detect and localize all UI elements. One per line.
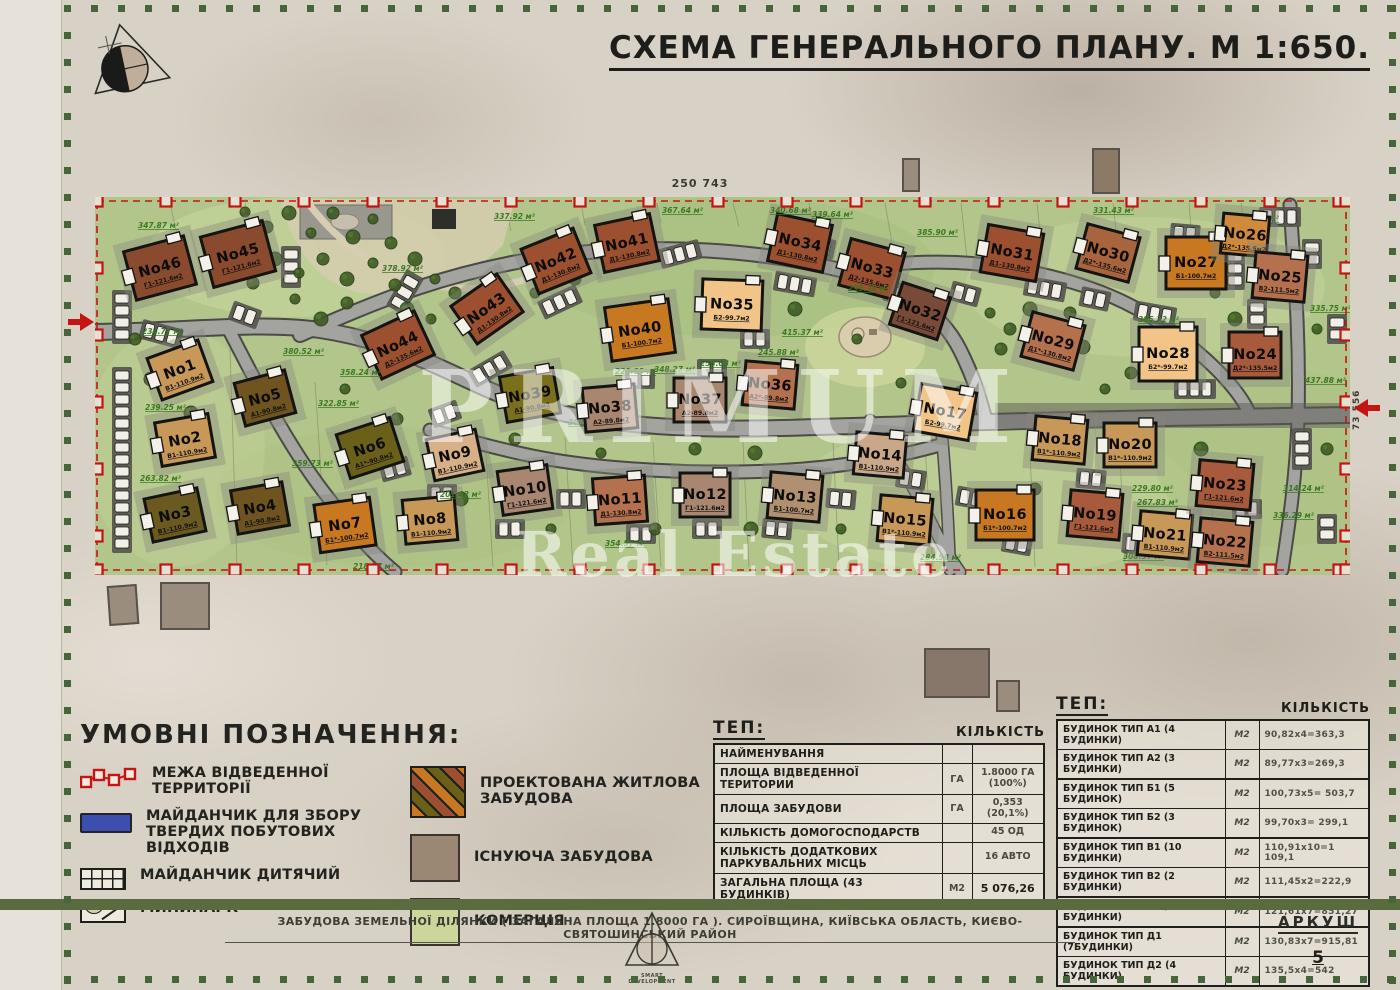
boundary-marker <box>1341 263 1351 274</box>
tep-types-row: БУДИНОК ТИП В1 (10 БУДИНКИ)М2110,91х10=1… <box>1057 838 1369 868</box>
plot-number: No16 <box>983 507 1027 523</box>
plot-No31: No31Д1-130.8м2 <box>970 214 1054 292</box>
plot-No40: No40Б1-100.7м2 <box>594 289 685 372</box>
existing-building <box>107 584 140 626</box>
tep-types-c-unit: М2 <box>1225 720 1259 750</box>
tep-main-c-name: КІЛЬКІСТЬ ДОМОГОСПОДАРСТВ <box>714 823 942 842</box>
arrow-head <box>80 313 94 331</box>
waste-area-icon <box>80 813 132 833</box>
tep-types-c-name: БУДИНОК ТИП Б1 (5 БУДИНОК) <box>1057 779 1225 809</box>
existing-housing-icon <box>410 834 460 882</box>
boundary-marker <box>644 197 655 207</box>
tep-types-c-name: БУДИНОК ТИП В2 (2 БУДИНКИ) <box>1057 868 1225 898</box>
boundary-marker <box>368 565 379 576</box>
parking-lot <box>112 367 132 553</box>
tep-types-title: ТЕП: <box>1056 694 1108 716</box>
tep-types-c-name: БУДИНОК ТИП Д1 (7БУДИНКИ) <box>1057 927 1225 957</box>
boundary-marker <box>230 197 241 207</box>
parking-lot <box>1292 428 1312 470</box>
tep-types-row: БУДИНОК ТИП Б2 (3 БУДИНОК)М299,70х3= 299… <box>1057 809 1369 839</box>
boundary-marker <box>1127 565 1138 576</box>
arrow-tail <box>1368 405 1380 411</box>
boundary-marker <box>1341 397 1351 408</box>
plot-type-label: Б1*-100.7м2 <box>983 525 1027 532</box>
legend-label: МАЙДАНЧИК ДЛЯ ЗБОРУ ТВЕРДИХ ПОБУТОВИХ ВІ… <box>146 809 372 857</box>
plot-area-label: 378.92 м² <box>382 264 424 273</box>
plot-type-label: Б2-99.7м2 <box>713 314 749 322</box>
plot-No12: No12Г1-121.6м2 <box>671 464 739 526</box>
plot-number: No20 <box>1108 437 1152 453</box>
boundary-marker <box>1265 197 1276 207</box>
tep-types-c-qty: 110,91х10=1 109,1 <box>1259 838 1369 868</box>
projected-housing-icon <box>410 766 466 818</box>
legend-item-boundary: МЕЖА ВІДВЕДЕННОЇ ТЕРРИТОРІЇ <box>80 766 372 798</box>
legend-heading: УМОВНІ ПОЗНАЧЕННЯ: <box>80 720 700 750</box>
developer-logo: SMART DEVELOPMENT <box>620 911 684 985</box>
tep-main-qty-header: КІЛЬКІСТЬ <box>956 725 1045 740</box>
plot-No25: No25В2-111.5м2 <box>1242 242 1317 312</box>
plot-type-label: Д2*-135.5м2 <box>1233 365 1278 372</box>
plot-number: No37 <box>678 392 722 408</box>
plot-number: No12 <box>683 487 727 503</box>
boundary-marker <box>161 197 172 207</box>
plot-area-label: 354.57 м² <box>605 539 647 548</box>
boundary-marker <box>95 464 103 475</box>
sheet-number: 5 <box>1268 948 1368 968</box>
boundary-marker <box>95 330 103 341</box>
plot-No20: No20В1*-110.9м2 <box>1095 414 1165 476</box>
plot-type-label: В1*-110.9м2 <box>1108 455 1152 462</box>
tep-main-table: ТЕП: КІЛЬКІСТЬ НАЙМЕНУВАННЯПЛОЩА ВІДВЕДЕ… <box>713 718 1045 906</box>
plot-area-label: 339.64 м² <box>812 210 854 219</box>
tep-main-row: ПЛОЩА ЗАБУДОВИГА0,353 (20,1%) <box>714 795 1044 824</box>
plot-No16: No16Б1*-100.7м2 <box>967 481 1043 549</box>
plot-No39: No39А1-90.8м2 <box>489 357 571 433</box>
tep-main-c-qty: 0,353 (20,1%) <box>972 795 1044 824</box>
boundary-marker <box>299 197 310 207</box>
tep-main-c-qty: 45 ОД <box>972 823 1044 842</box>
boundary-marker <box>989 565 1000 576</box>
tep-types-c-unit: М2 <box>1225 868 1259 898</box>
plot-number: No11 <box>598 490 643 509</box>
tep-types-qty-header: КІЛЬКІСТЬ <box>1281 701 1370 716</box>
tep-types-c-unit: М2 <box>1225 838 1259 868</box>
plot-No28: No28Б2*-99.7м2 <box>1130 318 1206 390</box>
tep-main-c-name: ПЛОЩА ВІДВЕДЕННОЇ ТЕРИТОРИИ <box>714 764 942 795</box>
plot-No7: No7Б1*-100.7м2 <box>304 487 386 563</box>
plot-area-label: 385.72 м² <box>1138 315 1180 324</box>
tep-main-row: НАЙМЕНУВАННЯ <box>714 744 1044 764</box>
company-logo <box>82 20 174 112</box>
boundary-marker <box>95 197 103 207</box>
boundary-marker <box>644 565 655 576</box>
plot-area-label: 258.03 м² <box>700 359 742 368</box>
plot-area-label: 239.25 м² <box>145 403 187 412</box>
legend-item-projected: ПРОЕКТОВАНА ЖИТЛОВА ЗАБУДОВА <box>410 766 700 818</box>
plot-area-label: 267.83 м² <box>1137 498 1179 507</box>
boundary-marker <box>506 565 517 576</box>
boundary-marker <box>989 197 1000 207</box>
tep-types-c-name: БУДИНОК ТИП А1 (4 БУДИНКИ) <box>1057 720 1225 750</box>
boundary-marker <box>1127 197 1138 207</box>
tep-types-c-qty: 99,70х3= 299,1 <box>1259 809 1369 839</box>
site-plan-map: No46Г1-121.6м2347.87 м²No45Г1-121.6м2No4… <box>95 197 1350 575</box>
boundary-marker <box>95 565 103 576</box>
boundary-marker <box>920 197 931 207</box>
tep-main-c-qty: 1.8000 ГА (100%) <box>972 764 1044 795</box>
tep-types-c-unit: М2 <box>1225 779 1259 809</box>
plot-area-label: 385.90 м² <box>917 228 959 237</box>
boundary-marker <box>1058 197 1069 207</box>
plot-area-label: 234.77 м² <box>142 327 184 336</box>
plot-number: No8 <box>413 511 448 530</box>
boundary-marker <box>782 197 793 207</box>
plot-number: No28 <box>1146 346 1190 362</box>
boundary-marker <box>713 565 724 576</box>
boundary-marker <box>230 565 241 576</box>
plot-area-label: 295.38 м² <box>848 284 890 293</box>
page-border-top <box>64 5 1394 12</box>
plot-area-label: 263.82 м² <box>140 474 182 483</box>
boundary-marker <box>368 197 379 207</box>
boundary-marker <box>1196 197 1207 207</box>
boundary-marker <box>782 565 793 576</box>
existing-building <box>160 582 210 630</box>
entry-arrow-left <box>68 313 94 331</box>
plot-No13: No13Б1-100.7м2 <box>757 462 832 532</box>
boundary-marker <box>1341 464 1351 475</box>
plot-area-label: 314.24 м² <box>1283 484 1325 493</box>
boundary-marker <box>920 565 931 576</box>
boundary-marker <box>95 531 103 542</box>
boundary-marker <box>299 565 310 576</box>
tep-types-c-name: БУДИНОК ТИП Б2 (3 БУДИНОК) <box>1057 809 1225 839</box>
boundary-marker <box>1196 565 1207 576</box>
parking-lot <box>1317 514 1337 544</box>
existing-building <box>902 158 920 192</box>
boundary-marker <box>95 397 103 408</box>
tep-types-c-qty: 89,77х3=269,3 <box>1259 750 1369 780</box>
legend-item-existing: ІСНУЮЧА ЗАБУДОВА <box>410 834 700 882</box>
legend-label: ІСНУЮЧА ЗАБУДОВА <box>474 850 653 866</box>
plot-area-label: 415.37 м² <box>782 328 824 337</box>
legend-label: ПРОЕКТОВАНА ЖИТЛОВА ЗАБУДОВА <box>480 776 700 808</box>
tep-types-c-name: БУДИНОК ТИП А2 (3 БУДИНКИ) <box>1057 750 1225 780</box>
plot-No35: No35Б2-99.7м2 <box>692 270 772 341</box>
plot-area-label: 284.58 м² <box>920 553 962 562</box>
boundary-marker <box>437 565 448 576</box>
plot-No17: No17Б2-99.7м2 <box>903 373 987 451</box>
tep-types-c-unit: М2 <box>1225 809 1259 839</box>
plot-area-label: 245.88 м² <box>758 348 800 357</box>
tep-main-row: КІЛЬКІСТЬ ДОМОГОСПОДАРСТВ45 ОД <box>714 823 1044 842</box>
tep-types-c-name: БУДИНОК ТИП В1 (10 БУДИНКИ) <box>1057 838 1225 868</box>
tep-types-c-unit: М2 <box>1225 927 1259 957</box>
plot-area-label: 322.85 м² <box>318 399 360 408</box>
plot-area-label: 229.80 м² <box>1132 484 1174 493</box>
plot-area-label: 336.29 м² <box>1273 511 1315 520</box>
plot-area-label: 437.88 м² <box>1305 376 1347 385</box>
tep-types-row: БУДИНОК ТИП В2 (2 БУДИНКИ)М2111,45х2=222… <box>1057 868 1369 898</box>
legend-item-waste: МАЙДАНЧИК ДЛЯ ЗБОРУ ТВЕРДИХ ПОБУТОВИХ ВІ… <box>80 809 372 857</box>
boundary-marker <box>506 197 517 207</box>
plot-No18: No18В1*-110.9м2 <box>1022 406 1097 474</box>
plot-area-label: 337.92 м² <box>494 212 536 221</box>
plot-area-label: 358.24 м² <box>340 368 382 377</box>
sheet-block: АРКУШ 5 <box>1268 912 1368 968</box>
plot-type-label: А2-89.8м2 <box>682 410 718 417</box>
tep-types-c-unit: М2 <box>1225 750 1259 780</box>
tep-types-c-qty: 90,82х4=363,3 <box>1259 720 1369 750</box>
tep-main-c-name: ПЛОЩА ЗАБУДОВИ <box>714 795 942 824</box>
boundary-marker <box>161 565 172 576</box>
plot-area-label: 229.83 м² <box>615 367 657 376</box>
plot-area-label: 335.75 м² <box>1310 304 1350 313</box>
boundary-marker <box>95 263 103 274</box>
entry-arrow-right <box>1354 399 1380 417</box>
boundary-marker <box>851 565 862 576</box>
page-title: СХЕМА ГЕНЕРАЛЬНОГО ПЛАНУ. М 1:650. <box>609 30 1370 71</box>
plot-No4: No4А1-90.8м2 <box>220 471 300 544</box>
site-plan-svg: No46Г1-121.6м2347.87 м²No45Г1-121.6м2No4… <box>95 197 1350 575</box>
legend-item-playground: МАЙДАНЧИК ДИТЯЧИЙ <box>80 868 372 890</box>
tep-types-c-qty: 100,73х5= 503,7 <box>1259 779 1369 809</box>
boundary-marker <box>575 197 586 207</box>
playground-icon <box>80 868 126 890</box>
boundary-marker <box>575 565 586 576</box>
parking-lot <box>281 246 301 288</box>
tep-types-row: БУДИНОК ТИП А1 (4 БУДИНКИ)М290,82х4=363,… <box>1057 720 1369 750</box>
tep-main-c-unit: ГА <box>942 795 972 824</box>
boundary-marker <box>1341 531 1351 542</box>
tep-main-c-name: КІЛЬКІСТЬ ДОДАТКОВИХ ПАРКУВАЛЬНИХ МІСЦЬ <box>714 842 942 873</box>
tep-main-c-qty <box>972 744 1044 764</box>
existing-building <box>1092 148 1120 194</box>
tep-main-c-qty: 16 АВТО <box>972 842 1044 873</box>
boundary-marker <box>1058 565 1069 576</box>
legend-label: МЕЖА ВІДВЕДЕННОЇ ТЕРРИТОРІЇ <box>152 766 372 798</box>
plot-number: No24 <box>1233 347 1277 363</box>
boundary-marker <box>851 197 862 207</box>
tep-main-c-unit <box>942 744 972 764</box>
plot-No2: No2В1-110.9м2 <box>144 403 226 477</box>
tep-types-c-qty: 111,45х2=222,9 <box>1259 868 1369 898</box>
tep-main-c-unit <box>942 842 972 873</box>
page-border-left <box>64 5 71 984</box>
legend: УМОВНІ ПОЗНАЧЕННЯ: МЕЖА ВІДВЕДЕННОЇ ТЕРР… <box>80 720 700 946</box>
boundary-marker <box>1341 197 1351 207</box>
tep-main-c-name: НАЙМЕНУВАННЯ <box>714 744 942 764</box>
tep-main-row: КІЛЬКІСТЬ ДОДАТКОВИХ ПАРКУВАЛЬНИХ МІСЦЬ1… <box>714 842 1044 873</box>
plot-area-label: 201.42 м² <box>440 490 482 499</box>
plot-No15: No15В1*-110.9м2 <box>867 485 942 555</box>
page-border-bottom <box>64 976 1394 983</box>
boundary-marker <box>1265 565 1276 576</box>
sheet-label: АРКУШ <box>1278 913 1358 934</box>
boundary-marker <box>1341 330 1351 341</box>
tep-main-row: ПЛОЩА ВІДВЕДЕННОЇ ТЕРИТОРИИГА1.8000 ГА (… <box>714 764 1044 795</box>
plot-number: No35 <box>710 296 754 314</box>
plot-area-label: 347.87 м² <box>138 221 180 230</box>
page-border-right <box>1389 5 1396 984</box>
legend-label: МАЙДАНЧИК ДИТЯЧИЙ <box>140 868 340 884</box>
boundary-dimension-top: 250 743 <box>620 177 780 190</box>
plot-No38: No38А2-89.8м2 <box>572 374 647 442</box>
plot-type-label: Б2*-99.7м2 <box>1148 364 1187 371</box>
plot-type-label: Г1-121.6м2 <box>685 505 725 512</box>
plot-area-label: 380.52 м² <box>283 347 325 356</box>
tep-types-row: БУДИНОК ТИП Б1 (5 БУДИНОК)М2100,73х5= 50… <box>1057 779 1369 809</box>
footer-green-bar <box>0 899 1400 910</box>
plot-No36: No36А2*-89.8м2 <box>732 351 807 419</box>
plot-type-label: Б1-100.7м2 <box>1176 273 1217 280</box>
tep-types-row: БУДИНОК ТИП А2 (3 БУДИНКИ)М289,77х3=269,… <box>1057 750 1369 780</box>
boundary-symbol-icon <box>80 766 138 796</box>
plot-area-label: 359.73 м² <box>292 459 334 468</box>
plot-area-label: 367.64 м² <box>662 206 704 215</box>
tep-main-title: ТЕП: <box>713 718 765 740</box>
drawing-sheet: СХЕМА ГЕНЕРАЛЬНОГО ПЛАНУ. М 1:650. 250 7… <box>0 0 1400 990</box>
boundary-marker <box>437 197 448 207</box>
tep-main-c-unit <box>942 823 972 842</box>
plot-No11: No11Д1-130.8м2 <box>583 466 657 535</box>
plot-No24: No24Д2*-135.5м2 <box>1220 323 1290 387</box>
plot-No19: No19Г1-121.6м2 <box>1057 480 1132 550</box>
plot-No37: No37А2-89.8м2 <box>665 369 735 431</box>
boundary-marker <box>1341 565 1351 576</box>
tep-main-c-unit: ГА <box>942 764 972 795</box>
plot-No10: No10Г1-121.6м2 <box>487 455 563 526</box>
boundary-marker <box>713 197 724 207</box>
existing-building <box>996 680 1020 712</box>
existing-building <box>924 648 990 698</box>
arrow-head <box>1354 399 1368 417</box>
